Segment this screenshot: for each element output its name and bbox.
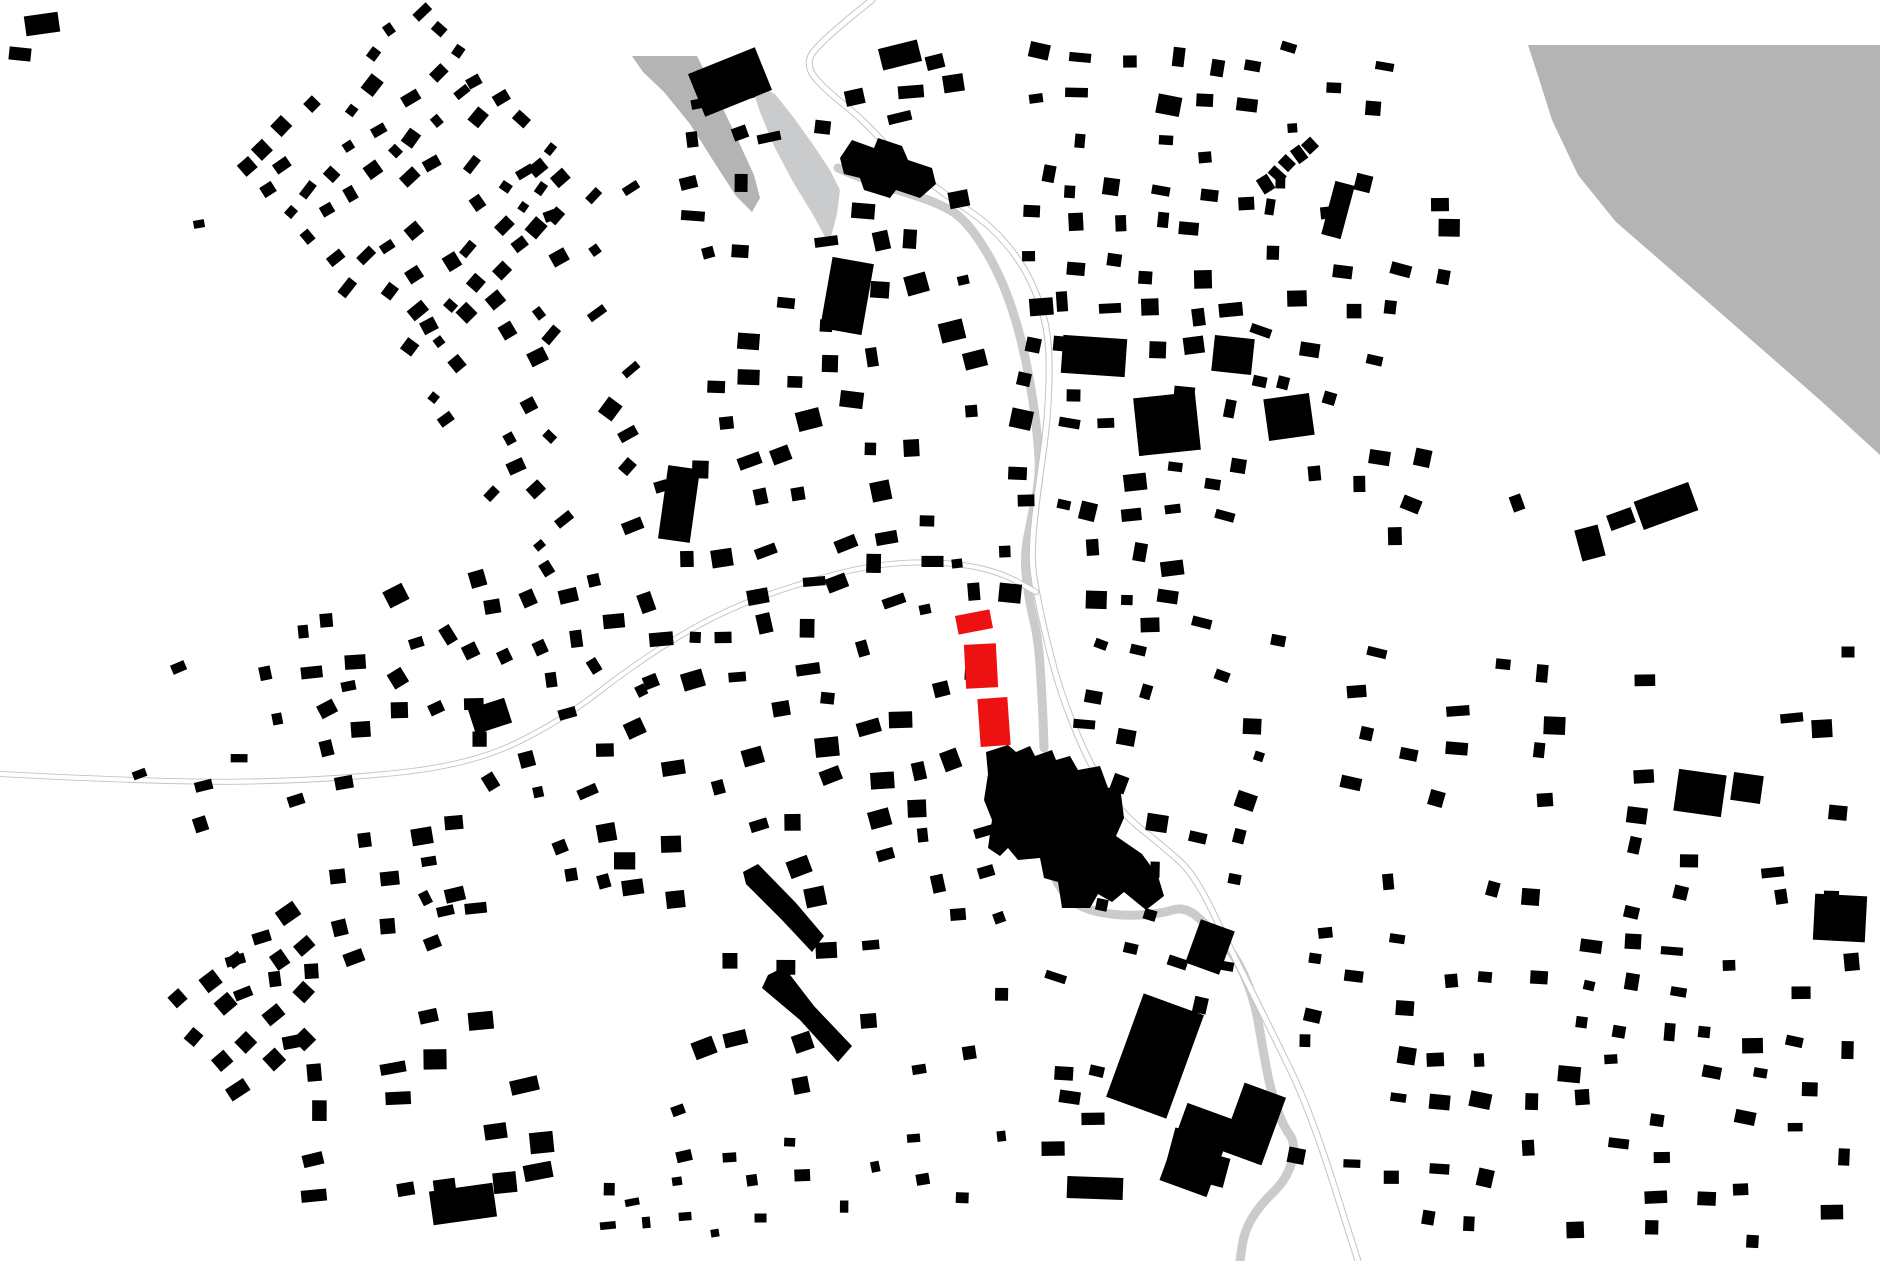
building xyxy=(1129,644,1147,657)
building xyxy=(1353,173,1373,193)
building xyxy=(1299,1034,1310,1047)
building xyxy=(672,1176,683,1186)
building xyxy=(957,275,970,286)
cluster-road-south-fringe xyxy=(329,783,617,935)
building xyxy=(167,988,187,1008)
building xyxy=(791,1031,815,1054)
building xyxy=(1522,1140,1535,1156)
building xyxy=(286,793,305,808)
building xyxy=(1140,617,1159,632)
building xyxy=(585,187,602,204)
building xyxy=(844,88,866,107)
building xyxy=(303,95,321,113)
building xyxy=(379,1060,406,1075)
cluster-northeast xyxy=(1230,41,1460,546)
building xyxy=(1287,1147,1307,1165)
building xyxy=(1266,246,1279,260)
building xyxy=(675,1149,693,1163)
building xyxy=(867,807,892,830)
building xyxy=(862,940,880,951)
building xyxy=(293,935,315,957)
building xyxy=(820,692,835,705)
building xyxy=(1680,854,1698,867)
building xyxy=(1213,669,1230,684)
building xyxy=(1073,719,1095,730)
building xyxy=(300,229,316,245)
building xyxy=(1102,177,1120,196)
building xyxy=(1029,93,1044,104)
building xyxy=(300,665,323,679)
building xyxy=(587,304,607,322)
building xyxy=(1058,1089,1081,1104)
building xyxy=(526,479,546,499)
building xyxy=(1121,595,1133,605)
building xyxy=(1366,354,1384,367)
building xyxy=(722,1029,748,1048)
building xyxy=(1368,449,1391,466)
building xyxy=(1841,1041,1854,1059)
building xyxy=(622,180,641,196)
building xyxy=(998,583,1022,604)
tall-block-west xyxy=(658,465,700,543)
building xyxy=(1155,93,1182,117)
building xyxy=(234,1031,257,1054)
building xyxy=(1191,616,1212,630)
building xyxy=(1066,262,1085,277)
building xyxy=(564,867,578,881)
building xyxy=(840,1200,849,1212)
building xyxy=(1575,1089,1590,1105)
building xyxy=(661,835,682,852)
building xyxy=(258,665,272,681)
building xyxy=(1023,205,1040,218)
big-hall-east-bank-b xyxy=(1263,393,1314,441)
building xyxy=(1774,889,1788,905)
building xyxy=(551,839,568,856)
highlight-layer xyxy=(955,609,1011,747)
building xyxy=(1733,1183,1749,1195)
highlighted-building-south xyxy=(977,697,1010,747)
building xyxy=(214,992,238,1016)
building xyxy=(1270,634,1286,647)
building xyxy=(1287,123,1297,133)
building xyxy=(1056,291,1068,312)
building xyxy=(418,890,433,906)
building xyxy=(301,1188,328,1202)
building xyxy=(550,168,571,189)
building xyxy=(382,22,396,37)
building xyxy=(225,1078,251,1101)
building xyxy=(1151,184,1171,196)
building xyxy=(903,272,930,297)
building xyxy=(1742,1038,1763,1054)
building xyxy=(1697,1191,1716,1206)
building xyxy=(1123,942,1139,955)
building xyxy=(1761,866,1784,878)
building xyxy=(492,1171,517,1194)
building xyxy=(870,771,895,789)
building xyxy=(1168,461,1183,472)
building xyxy=(1008,467,1027,481)
corner-mark-b xyxy=(8,46,31,61)
building xyxy=(492,261,512,281)
building xyxy=(1429,1094,1451,1111)
building xyxy=(1395,1000,1414,1016)
building xyxy=(444,815,464,831)
building xyxy=(1196,93,1213,107)
building xyxy=(362,159,383,180)
building xyxy=(992,911,1006,925)
building xyxy=(271,712,283,725)
building xyxy=(1068,212,1084,231)
building xyxy=(800,619,815,638)
east-square-block xyxy=(1211,335,1255,375)
building xyxy=(803,576,826,587)
building xyxy=(1084,689,1103,705)
building xyxy=(529,1131,555,1154)
building xyxy=(1533,742,1546,758)
building xyxy=(1287,290,1307,307)
building xyxy=(1663,1023,1675,1042)
building xyxy=(636,591,656,614)
building xyxy=(740,746,765,768)
building xyxy=(461,641,481,660)
building xyxy=(911,761,927,781)
cluster-nw-village xyxy=(237,2,602,356)
building xyxy=(329,868,346,884)
building xyxy=(851,202,875,219)
building xyxy=(387,667,410,690)
building xyxy=(1838,1148,1850,1165)
building xyxy=(912,1064,927,1075)
building xyxy=(903,439,920,457)
building xyxy=(251,929,272,945)
building xyxy=(1604,1054,1618,1064)
building xyxy=(1634,674,1655,686)
riverbank-wash xyxy=(754,86,840,244)
building xyxy=(1624,972,1640,991)
building xyxy=(603,613,626,629)
building xyxy=(1249,323,1272,339)
building xyxy=(1086,590,1108,609)
building xyxy=(932,680,951,698)
building xyxy=(872,230,892,252)
building xyxy=(710,1229,719,1238)
building xyxy=(379,918,395,935)
building xyxy=(341,139,355,152)
building xyxy=(787,376,802,388)
building xyxy=(262,1047,286,1071)
building xyxy=(1788,1123,1803,1132)
building xyxy=(1426,1052,1444,1066)
building xyxy=(907,1133,921,1142)
building xyxy=(898,84,925,99)
building xyxy=(344,654,366,670)
farm-group-east-b xyxy=(1606,507,1636,531)
building xyxy=(771,700,791,718)
building xyxy=(1802,1082,1818,1097)
building xyxy=(1702,1064,1723,1079)
building xyxy=(1339,775,1362,792)
building xyxy=(326,248,346,267)
building xyxy=(622,361,641,379)
building xyxy=(569,630,583,649)
west-road xyxy=(0,562,1036,781)
building xyxy=(1078,501,1098,523)
riverside-hall xyxy=(1061,335,1127,377)
building xyxy=(361,73,384,97)
building xyxy=(881,592,906,609)
building xyxy=(558,587,580,605)
building xyxy=(1230,458,1247,475)
building xyxy=(714,632,731,644)
building xyxy=(680,551,694,567)
building xyxy=(680,668,706,691)
building xyxy=(962,1045,977,1060)
building xyxy=(312,1100,327,1121)
building xyxy=(678,1212,691,1221)
building xyxy=(1384,300,1397,315)
building xyxy=(967,582,980,601)
building xyxy=(400,89,421,108)
building xyxy=(447,354,466,373)
building xyxy=(1029,297,1054,316)
building xyxy=(614,852,635,869)
building xyxy=(1670,986,1687,998)
building xyxy=(502,431,516,446)
building xyxy=(427,391,440,404)
building xyxy=(481,771,501,792)
building xyxy=(319,202,335,218)
building xyxy=(1649,1113,1664,1127)
building xyxy=(306,1063,322,1082)
lone-house-west xyxy=(193,219,205,229)
building xyxy=(423,1049,446,1069)
building xyxy=(996,1131,1006,1142)
building xyxy=(1188,830,1208,844)
building xyxy=(587,573,602,588)
building xyxy=(1299,341,1321,358)
building xyxy=(259,181,277,198)
building xyxy=(1627,836,1642,855)
building xyxy=(485,289,507,310)
building xyxy=(251,139,273,161)
building xyxy=(437,411,455,428)
building xyxy=(1446,705,1470,717)
building xyxy=(381,282,399,301)
building xyxy=(1164,504,1181,515)
building xyxy=(1200,189,1219,203)
building xyxy=(1623,905,1640,920)
building xyxy=(1583,980,1596,992)
building xyxy=(419,316,439,335)
building xyxy=(1344,969,1364,983)
building xyxy=(548,247,569,267)
building xyxy=(1661,946,1684,956)
building xyxy=(463,155,481,175)
building xyxy=(538,560,555,578)
building xyxy=(870,281,890,299)
building xyxy=(323,165,341,183)
building xyxy=(918,604,931,616)
building xyxy=(865,347,879,367)
building xyxy=(531,639,548,657)
building xyxy=(1413,448,1433,469)
building xyxy=(1308,952,1321,964)
site-plan-map xyxy=(0,0,1880,1261)
building xyxy=(769,444,792,465)
building xyxy=(472,732,486,747)
building xyxy=(510,235,528,253)
building xyxy=(1054,1066,1073,1081)
building xyxy=(1172,47,1186,67)
building xyxy=(1400,494,1423,514)
building xyxy=(814,235,838,248)
building xyxy=(483,1122,507,1141)
building xyxy=(498,321,518,341)
building xyxy=(412,2,432,22)
building xyxy=(541,325,561,346)
building xyxy=(342,185,359,203)
building xyxy=(1359,726,1374,742)
hall-by-stream xyxy=(820,257,874,335)
building xyxy=(453,84,470,100)
building xyxy=(661,759,686,777)
building xyxy=(408,636,425,650)
building xyxy=(356,245,376,265)
top-edge-house-a xyxy=(878,39,922,70)
building xyxy=(509,1075,540,1095)
building xyxy=(679,175,699,191)
building xyxy=(839,390,864,409)
building xyxy=(1264,198,1275,215)
building xyxy=(939,748,962,773)
building xyxy=(604,1183,615,1196)
building xyxy=(707,380,725,393)
building xyxy=(621,516,645,535)
building xyxy=(1149,341,1166,358)
building xyxy=(1828,804,1848,820)
building xyxy=(701,246,715,260)
building xyxy=(483,485,500,502)
building xyxy=(464,902,487,915)
building xyxy=(1421,1210,1435,1226)
building xyxy=(198,969,222,993)
building xyxy=(818,765,843,786)
building xyxy=(1121,508,1142,522)
building xyxy=(755,612,773,635)
building xyxy=(1723,960,1736,971)
cluster-valley-rows xyxy=(1041,1064,1105,1156)
building xyxy=(1280,41,1297,54)
building xyxy=(269,949,291,971)
building xyxy=(270,115,292,137)
building xyxy=(1123,55,1137,67)
building xyxy=(866,554,881,573)
building xyxy=(755,1213,767,1222)
cluster-southeast-upper xyxy=(1339,646,1565,906)
building xyxy=(421,856,437,868)
building xyxy=(184,1027,204,1047)
building xyxy=(407,300,430,322)
map-viewport xyxy=(0,0,1880,1261)
building xyxy=(1157,589,1179,605)
building xyxy=(1318,927,1333,939)
building xyxy=(1099,303,1122,314)
southeast-hall-a xyxy=(1673,769,1726,817)
building xyxy=(686,131,699,148)
building xyxy=(527,157,548,178)
building xyxy=(1566,1221,1584,1238)
building xyxy=(1058,417,1080,430)
building xyxy=(483,598,501,614)
building xyxy=(1521,888,1540,906)
building xyxy=(822,355,839,373)
building xyxy=(1178,221,1199,235)
building xyxy=(1530,970,1548,984)
building xyxy=(1753,1067,1768,1078)
building xyxy=(1575,1016,1588,1029)
building xyxy=(1089,1064,1105,1078)
building xyxy=(1234,790,1258,812)
building xyxy=(466,273,486,293)
building xyxy=(803,885,827,908)
building xyxy=(1608,1137,1629,1149)
building xyxy=(624,1197,639,1207)
building xyxy=(917,828,929,843)
building xyxy=(1389,933,1405,944)
building xyxy=(469,194,487,212)
building xyxy=(1557,1065,1581,1083)
building xyxy=(1525,1093,1538,1110)
building xyxy=(1375,61,1394,72)
building xyxy=(237,156,258,177)
building xyxy=(1157,212,1169,228)
building xyxy=(735,174,748,192)
building xyxy=(1115,215,1126,232)
building xyxy=(784,814,800,831)
building xyxy=(275,901,302,926)
building xyxy=(532,786,544,798)
west-road-casing xyxy=(0,562,1036,781)
building xyxy=(795,407,823,432)
building xyxy=(542,429,557,444)
building xyxy=(1438,219,1459,237)
building xyxy=(833,534,858,554)
building xyxy=(468,1011,495,1031)
building xyxy=(443,298,458,313)
building xyxy=(1624,933,1641,949)
building xyxy=(1210,59,1225,78)
building xyxy=(746,1174,758,1187)
building xyxy=(1194,270,1212,289)
building xyxy=(1223,399,1237,419)
building xyxy=(690,1036,717,1061)
cluster-south-center xyxy=(614,799,1008,1117)
building xyxy=(1238,197,1254,211)
building xyxy=(1390,1092,1407,1103)
building xyxy=(681,210,705,222)
hillside-northeast xyxy=(1528,45,1880,455)
building xyxy=(518,588,537,608)
building xyxy=(1041,1141,1064,1156)
building xyxy=(396,1181,415,1197)
building xyxy=(1397,1046,1417,1066)
building xyxy=(876,847,896,862)
building xyxy=(596,743,614,757)
building xyxy=(533,539,546,552)
building xyxy=(520,396,539,414)
